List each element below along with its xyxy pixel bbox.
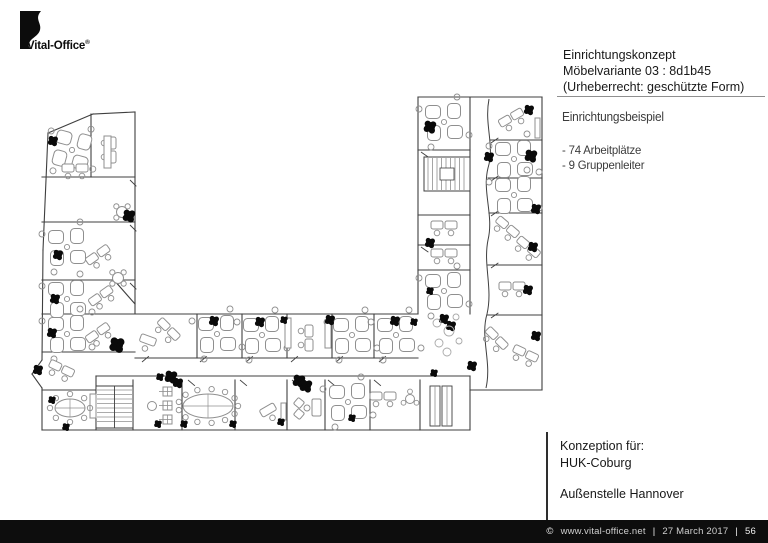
- door-swing: [328, 380, 335, 386]
- workstation-cluster: [320, 374, 376, 430]
- plant-icon: [531, 331, 541, 341]
- duo-desk: [370, 392, 396, 407]
- single-desk: [259, 403, 281, 425]
- lounge-set: [293, 397, 321, 419]
- page-number: 56: [745, 526, 756, 537]
- single-desk: [136, 334, 156, 354]
- slide-page: Vital-Office® Einrichtungskonzept Möbelv…: [0, 0, 768, 543]
- workstation-cluster: [38, 116, 107, 185]
- plant-icon: [33, 365, 43, 375]
- coat-rack: [159, 401, 172, 410]
- pebble-decor: [453, 314, 459, 320]
- groupleaders-count: - 9 Gruppenleiter: [562, 158, 752, 173]
- coat-rack: [159, 387, 172, 396]
- corridor-wall: [485, 99, 491, 388]
- client-site: Außenstelle Hannover: [560, 486, 760, 503]
- workstation-cluster: [39, 219, 95, 275]
- concept-header: Einrichtungskonzept Möbelvariante 03 : 8…: [563, 47, 763, 95]
- workstation-cluster: [416, 263, 472, 319]
- client-block: Konzeption für: HUK-Coburg Außenstelle H…: [560, 438, 760, 503]
- plant-icon: [229, 420, 237, 428]
- copyright-symbol: ©: [546, 526, 553, 537]
- workstation-cluster: [39, 271, 95, 327]
- example-block: Einrichtungsbeispiel - 74 Arbeitplätze -…: [562, 110, 752, 173]
- plant-icon: [300, 380, 313, 393]
- plant-icon: [173, 378, 183, 388]
- wall: [42, 250, 43, 360]
- door-swing: [291, 356, 298, 362]
- footer-date: 27 March 2017: [662, 526, 728, 537]
- duo-desk: [45, 359, 75, 383]
- plant-icon: [484, 152, 494, 162]
- cabinet: [535, 118, 540, 138]
- plant-icon: [425, 238, 435, 248]
- plant-icon: [180, 420, 188, 428]
- wall: [93, 112, 135, 114]
- door-swing: [421, 247, 428, 252]
- duo-desk: [431, 221, 457, 236]
- plant-icon: [255, 317, 265, 327]
- wall: [48, 114, 93, 133]
- plant-icon: [531, 204, 541, 214]
- conference-table: [47, 391, 92, 424]
- copyright-note: (Urheberrecht: geschützte Form): [563, 79, 763, 95]
- plant-icon: [47, 328, 57, 338]
- plant-icon: [528, 242, 538, 252]
- plant-icon: [524, 105, 534, 115]
- duo-desk: [85, 244, 115, 271]
- plant-icon: [424, 121, 437, 134]
- workstation-cluster: [416, 94, 472, 150]
- door-swing: [142, 356, 149, 362]
- door-swing: [421, 152, 428, 157]
- header-divider: [557, 96, 765, 97]
- door-swing: [374, 380, 381, 386]
- plant-icon: [123, 210, 136, 223]
- cabinet: [90, 394, 96, 418]
- plant-icon: [390, 316, 400, 326]
- concept-title: Einrichtungskonzept: [563, 47, 763, 63]
- plant-icon: [525, 150, 538, 163]
- footer-bar: © www.vital-office.net | 27 March 2017 |…: [0, 520, 768, 543]
- staircase: [424, 157, 470, 191]
- staircase: [96, 386, 133, 428]
- wall: [43, 133, 48, 250]
- plant-icon: [109, 337, 124, 353]
- workstation-cluster: [368, 307, 424, 363]
- plant-icon: [154, 420, 162, 428]
- locker: [430, 386, 440, 426]
- duo-desk: [431, 249, 457, 264]
- client-name: HUK-Coburg: [560, 455, 760, 472]
- plant-icon: [209, 316, 219, 326]
- example-list: - 74 Arbeitplätze - 9 Gruppenleiter: [562, 143, 752, 173]
- plant-icon: [53, 250, 63, 260]
- duo-desk: [298, 325, 313, 351]
- locker: [442, 386, 452, 426]
- plant-icon: [277, 418, 285, 426]
- duo-desk: [498, 108, 528, 134]
- round-table: [110, 270, 127, 287]
- plant-icon: [48, 136, 58, 146]
- footer-separator: |: [735, 526, 738, 537]
- duo-desk: [499, 282, 525, 297]
- duo-desk: [491, 216, 520, 244]
- plant-icon: [523, 285, 533, 295]
- pebble-decor: [433, 319, 441, 327]
- client-divider: [546, 432, 548, 520]
- plant-icon: [467, 361, 477, 371]
- plant-icon: [48, 396, 56, 404]
- plant-icon: [156, 373, 164, 381]
- client-label: Konzeption für:: [560, 438, 760, 455]
- wall: [32, 374, 42, 388]
- footer-separator: |: [653, 526, 656, 537]
- plant-icon: [280, 316, 288, 324]
- duo-desk: [509, 344, 539, 368]
- plant-icon: [348, 414, 356, 422]
- plant-icon: [430, 369, 438, 377]
- small-table: [148, 402, 157, 411]
- workplaces-count: - 74 Arbeitplätze: [562, 143, 752, 158]
- cabinet: [104, 136, 111, 168]
- footer-url: www.vital-office.net: [561, 526, 646, 537]
- duo-desk: [88, 285, 118, 312]
- plant-icon: [410, 318, 418, 326]
- small-table: [401, 389, 419, 405]
- door-swing: [240, 380, 247, 386]
- plant-icon: [325, 315, 335, 325]
- variant-line: Möbelvariante 03 : 8d1b45: [563, 63, 763, 79]
- pebble-decor: [435, 339, 443, 347]
- plant-icon: [62, 423, 70, 431]
- cabinet: [281, 403, 286, 420]
- example-title: Einrichtungsbeispiel: [562, 110, 752, 124]
- workstation-cluster: [486, 167, 542, 223]
- plant-icon: [426, 287, 434, 295]
- pebble-decor: [443, 348, 451, 356]
- conference-table: [176, 386, 241, 425]
- plant-icon: [50, 294, 60, 304]
- door-swing: [188, 380, 195, 386]
- pebble-decor: [456, 338, 462, 344]
